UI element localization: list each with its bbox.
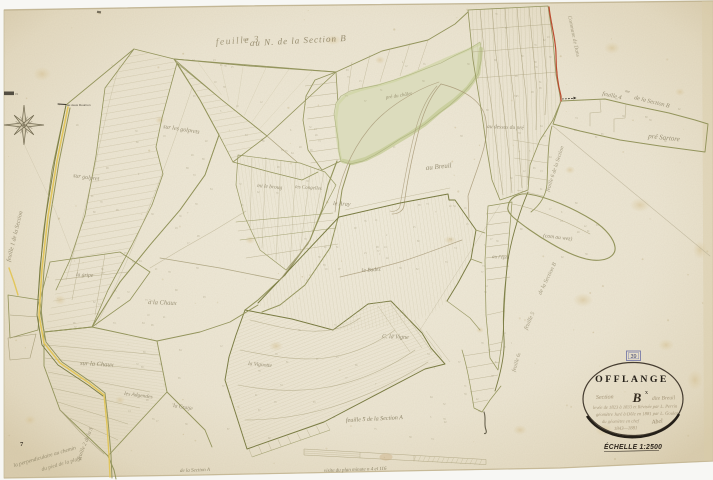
svg-text:C. la Vigne: C. la Vigne [382, 334, 409, 341]
svg-text:39: 39 [630, 354, 636, 360]
svg-text:Section: Section [596, 394, 614, 401]
svg-text:x: x [645, 390, 648, 396]
svg-text:le Aray: le Aray [333, 201, 351, 208]
svg-text:B: B [632, 390, 642, 405]
svg-text:la gripe: la gripe [76, 272, 94, 279]
svg-text:ÉCHELLE 1:2500: ÉCHELLE 1:2500 [604, 442, 662, 451]
svg-text:au vieux Dournon: au vieux Dournon [67, 103, 91, 107]
svg-text:dite Breuil: dite Breuil [652, 395, 676, 402]
svg-text:1843—1881: 1843—1881 [614, 426, 638, 432]
svg-text:du géomètre en chef: du géomètre en chef [602, 418, 640, 424]
svg-text:au l'épta: au l'épta [492, 255, 510, 261]
svg-text:OFFLANGE: OFFLANGE [595, 374, 669, 385]
svg-text:N: N [16, 92, 18, 96]
